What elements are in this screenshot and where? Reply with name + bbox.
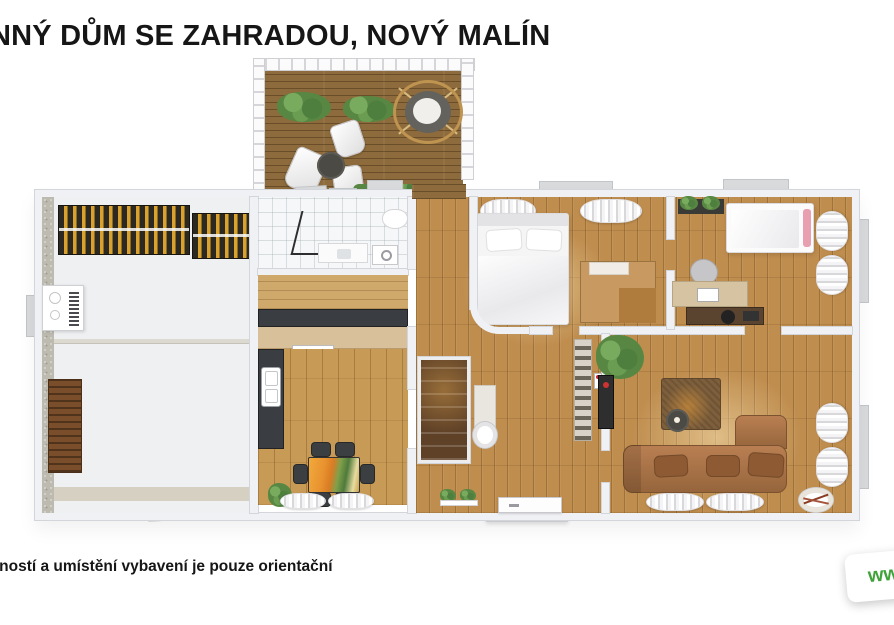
curtain bbox=[816, 403, 848, 443]
wardrobe-shelf bbox=[589, 262, 629, 275]
terrace-hedge bbox=[343, 96, 395, 122]
watermark-card: ww bbox=[844, 549, 894, 603]
boiler bbox=[42, 285, 84, 331]
sink-basin bbox=[337, 249, 351, 259]
firewood-rack bbox=[48, 379, 82, 473]
kids-plant-shelf bbox=[678, 199, 724, 214]
kids-desk bbox=[672, 281, 748, 307]
disclaimer-note: tností a umístění vybavení je pouze orie… bbox=[0, 558, 333, 576]
curtain bbox=[816, 447, 848, 487]
shoe-cabinet bbox=[574, 339, 592, 441]
sofa-cushion bbox=[706, 455, 740, 477]
wall-kitchen-east bbox=[408, 327, 416, 389]
house-interior bbox=[42, 197, 852, 513]
wall-kitchen-east bbox=[408, 449, 416, 513]
pergola-beam-top bbox=[253, 58, 475, 71]
sofa-armrest bbox=[623, 445, 641, 493]
candle bbox=[674, 417, 680, 423]
entry-planter bbox=[440, 489, 478, 507]
hanging-chair-cushion bbox=[413, 98, 441, 124]
wardrobe-return bbox=[619, 288, 656, 323]
dining-table bbox=[308, 457, 360, 493]
sofa-chaise bbox=[735, 415, 787, 449]
house-outline bbox=[35, 190, 859, 520]
garage-concrete-floor-strip bbox=[54, 487, 250, 501]
planter-box bbox=[440, 500, 478, 506]
watermark-text: ww bbox=[844, 551, 894, 601]
coffee-table bbox=[666, 409, 689, 432]
boiler-knob bbox=[50, 310, 60, 320]
wall-bedroom-kidsroom bbox=[667, 197, 674, 239]
terrace-door-threshold bbox=[412, 184, 466, 199]
firewood-stack bbox=[192, 213, 250, 259]
wall-kitchen-east bbox=[408, 197, 416, 269]
kids-pillow bbox=[803, 209, 811, 247]
page-title: NNÝ DŮM SE ZAHRADOU, NOVÝ MALÍN bbox=[0, 20, 550, 53]
hall-chair bbox=[472, 421, 498, 449]
stove-light bbox=[603, 382, 609, 388]
curtain bbox=[816, 255, 848, 295]
firewood-stack bbox=[58, 205, 190, 255]
sink-basin bbox=[265, 371, 278, 386]
kitchen-counter-north bbox=[258, 309, 408, 327]
pillow bbox=[485, 228, 522, 252]
laptop bbox=[697, 288, 719, 302]
sink-basin bbox=[265, 389, 278, 403]
front-door bbox=[498, 497, 562, 513]
wall-bedroom-west bbox=[470, 197, 477, 309]
wood-stove bbox=[598, 375, 614, 429]
headboard bbox=[478, 214, 568, 226]
pillow bbox=[525, 228, 562, 252]
curtain bbox=[580, 199, 642, 223]
staircase bbox=[418, 357, 470, 463]
single-bed bbox=[726, 203, 814, 253]
kids-blanket bbox=[731, 210, 799, 248]
curtain bbox=[706, 493, 764, 511]
wall-garage-divider bbox=[250, 197, 258, 513]
wall-kidsroom-south bbox=[782, 327, 852, 334]
kitchen-sink bbox=[261, 367, 281, 407]
sofa-cushion bbox=[747, 452, 785, 478]
dining-chair bbox=[361, 465, 374, 483]
living-plant bbox=[596, 335, 644, 379]
terrace-coffee-table bbox=[317, 152, 345, 179]
floorplan-render: NNÝ DŮM SE ZAHRADOU, NOVÝ MALÍN bbox=[0, 0, 894, 625]
bathroom-vanity bbox=[318, 243, 368, 263]
dining-chair bbox=[336, 443, 354, 456]
boiler-grille bbox=[69, 292, 79, 326]
pergola-beam-left bbox=[253, 58, 265, 196]
desk-chair bbox=[721, 310, 735, 324]
washer-door bbox=[381, 250, 392, 261]
shelf-plant bbox=[702, 196, 720, 210]
washing-machine bbox=[372, 245, 398, 265]
wardrobe bbox=[580, 261, 656, 323]
terrace bbox=[253, 58, 475, 198]
terrace-hedge bbox=[277, 92, 331, 122]
curtain bbox=[816, 211, 848, 251]
corridor bbox=[258, 275, 408, 309]
dining-chair bbox=[312, 443, 330, 456]
monitor bbox=[743, 311, 759, 321]
kids-dark-desk bbox=[686, 307, 764, 325]
curtain bbox=[280, 493, 326, 509]
sofa-cushion bbox=[653, 454, 688, 478]
curtain bbox=[328, 493, 374, 509]
shelf-plant bbox=[680, 196, 698, 210]
garage-shelf bbox=[54, 339, 250, 344]
wall-bedroom-south bbox=[530, 327, 552, 334]
toilet bbox=[382, 209, 408, 229]
wall-hall-living bbox=[602, 483, 609, 513]
dining-chair bbox=[294, 465, 307, 483]
door-handle bbox=[509, 504, 519, 507]
decor-vase bbox=[798, 487, 834, 513]
wall-bedroom-south bbox=[580, 327, 744, 334]
curtain bbox=[646, 493, 704, 511]
hanging-chair bbox=[393, 80, 463, 144]
boiler-knob bbox=[49, 292, 61, 304]
